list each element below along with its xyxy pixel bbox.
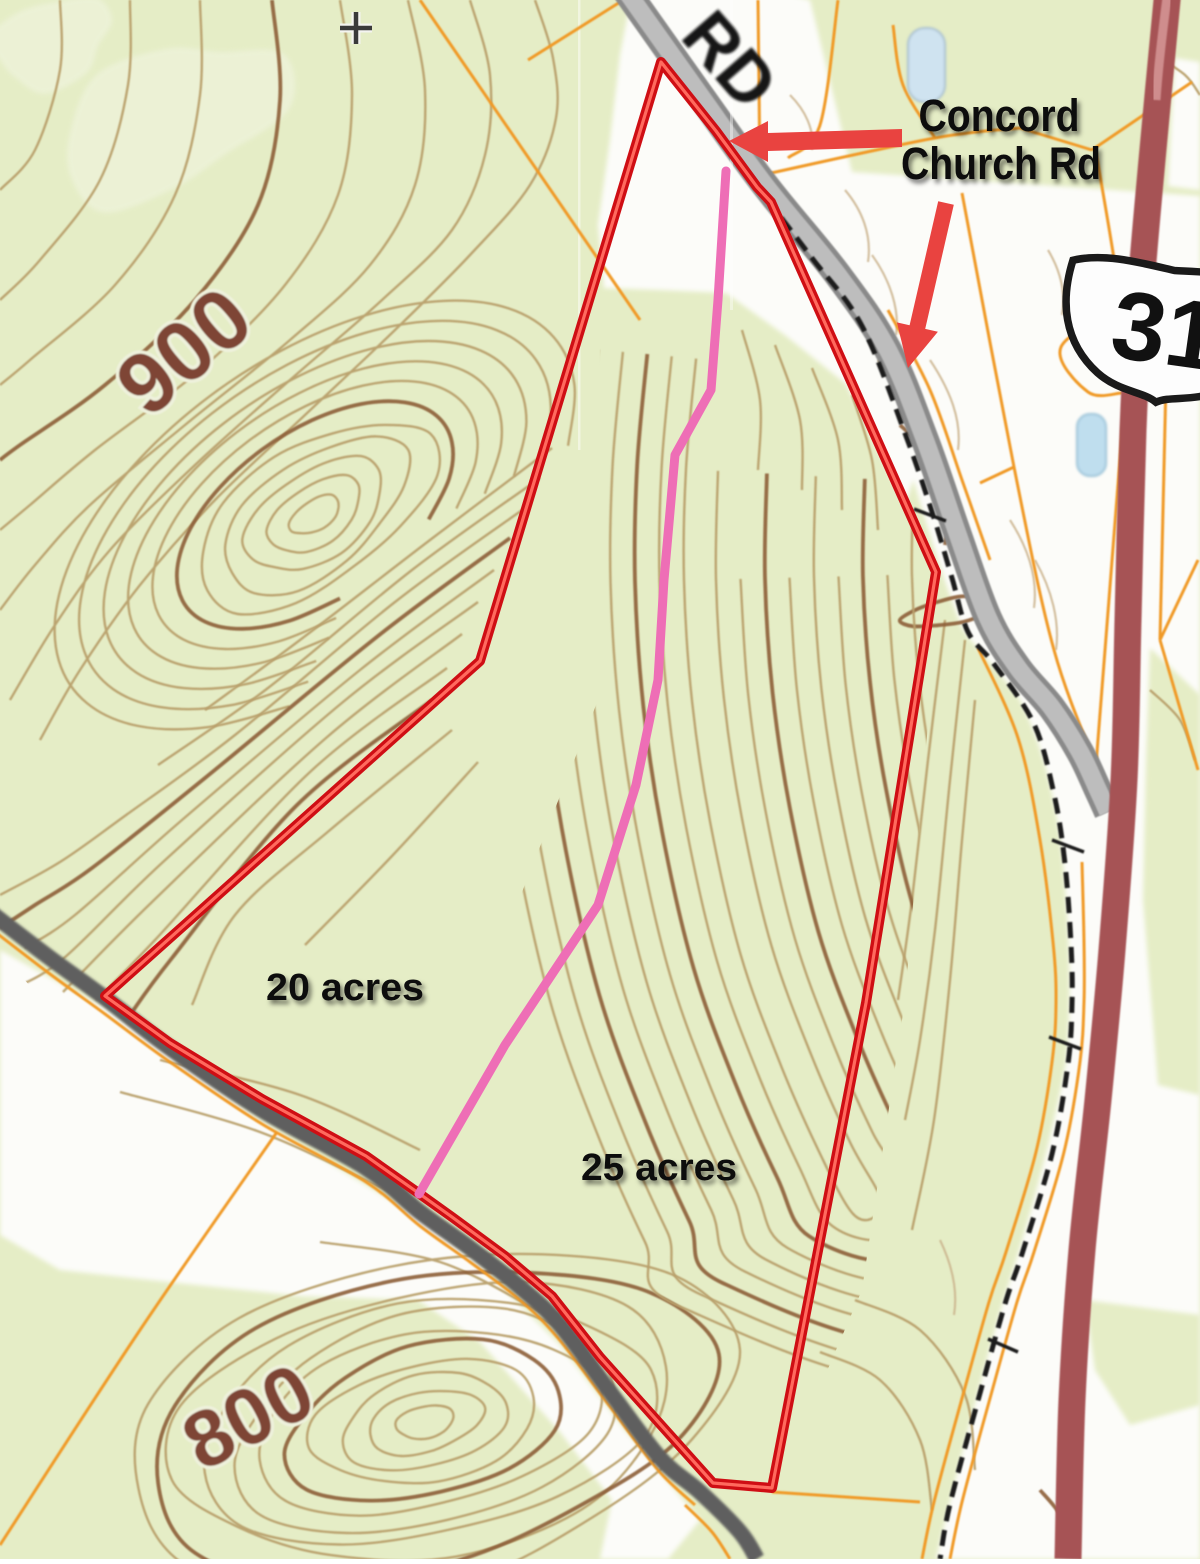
svg-text:25 acres: 25 acres	[581, 1147, 737, 1189]
svg-text:Concord: Concord	[919, 90, 1080, 141]
svg-text:20 acres: 20 acres	[266, 967, 424, 1009]
svg-text:Church Rd: Church Rd	[901, 138, 1101, 189]
svg-text:31: 31	[1105, 269, 1200, 392]
